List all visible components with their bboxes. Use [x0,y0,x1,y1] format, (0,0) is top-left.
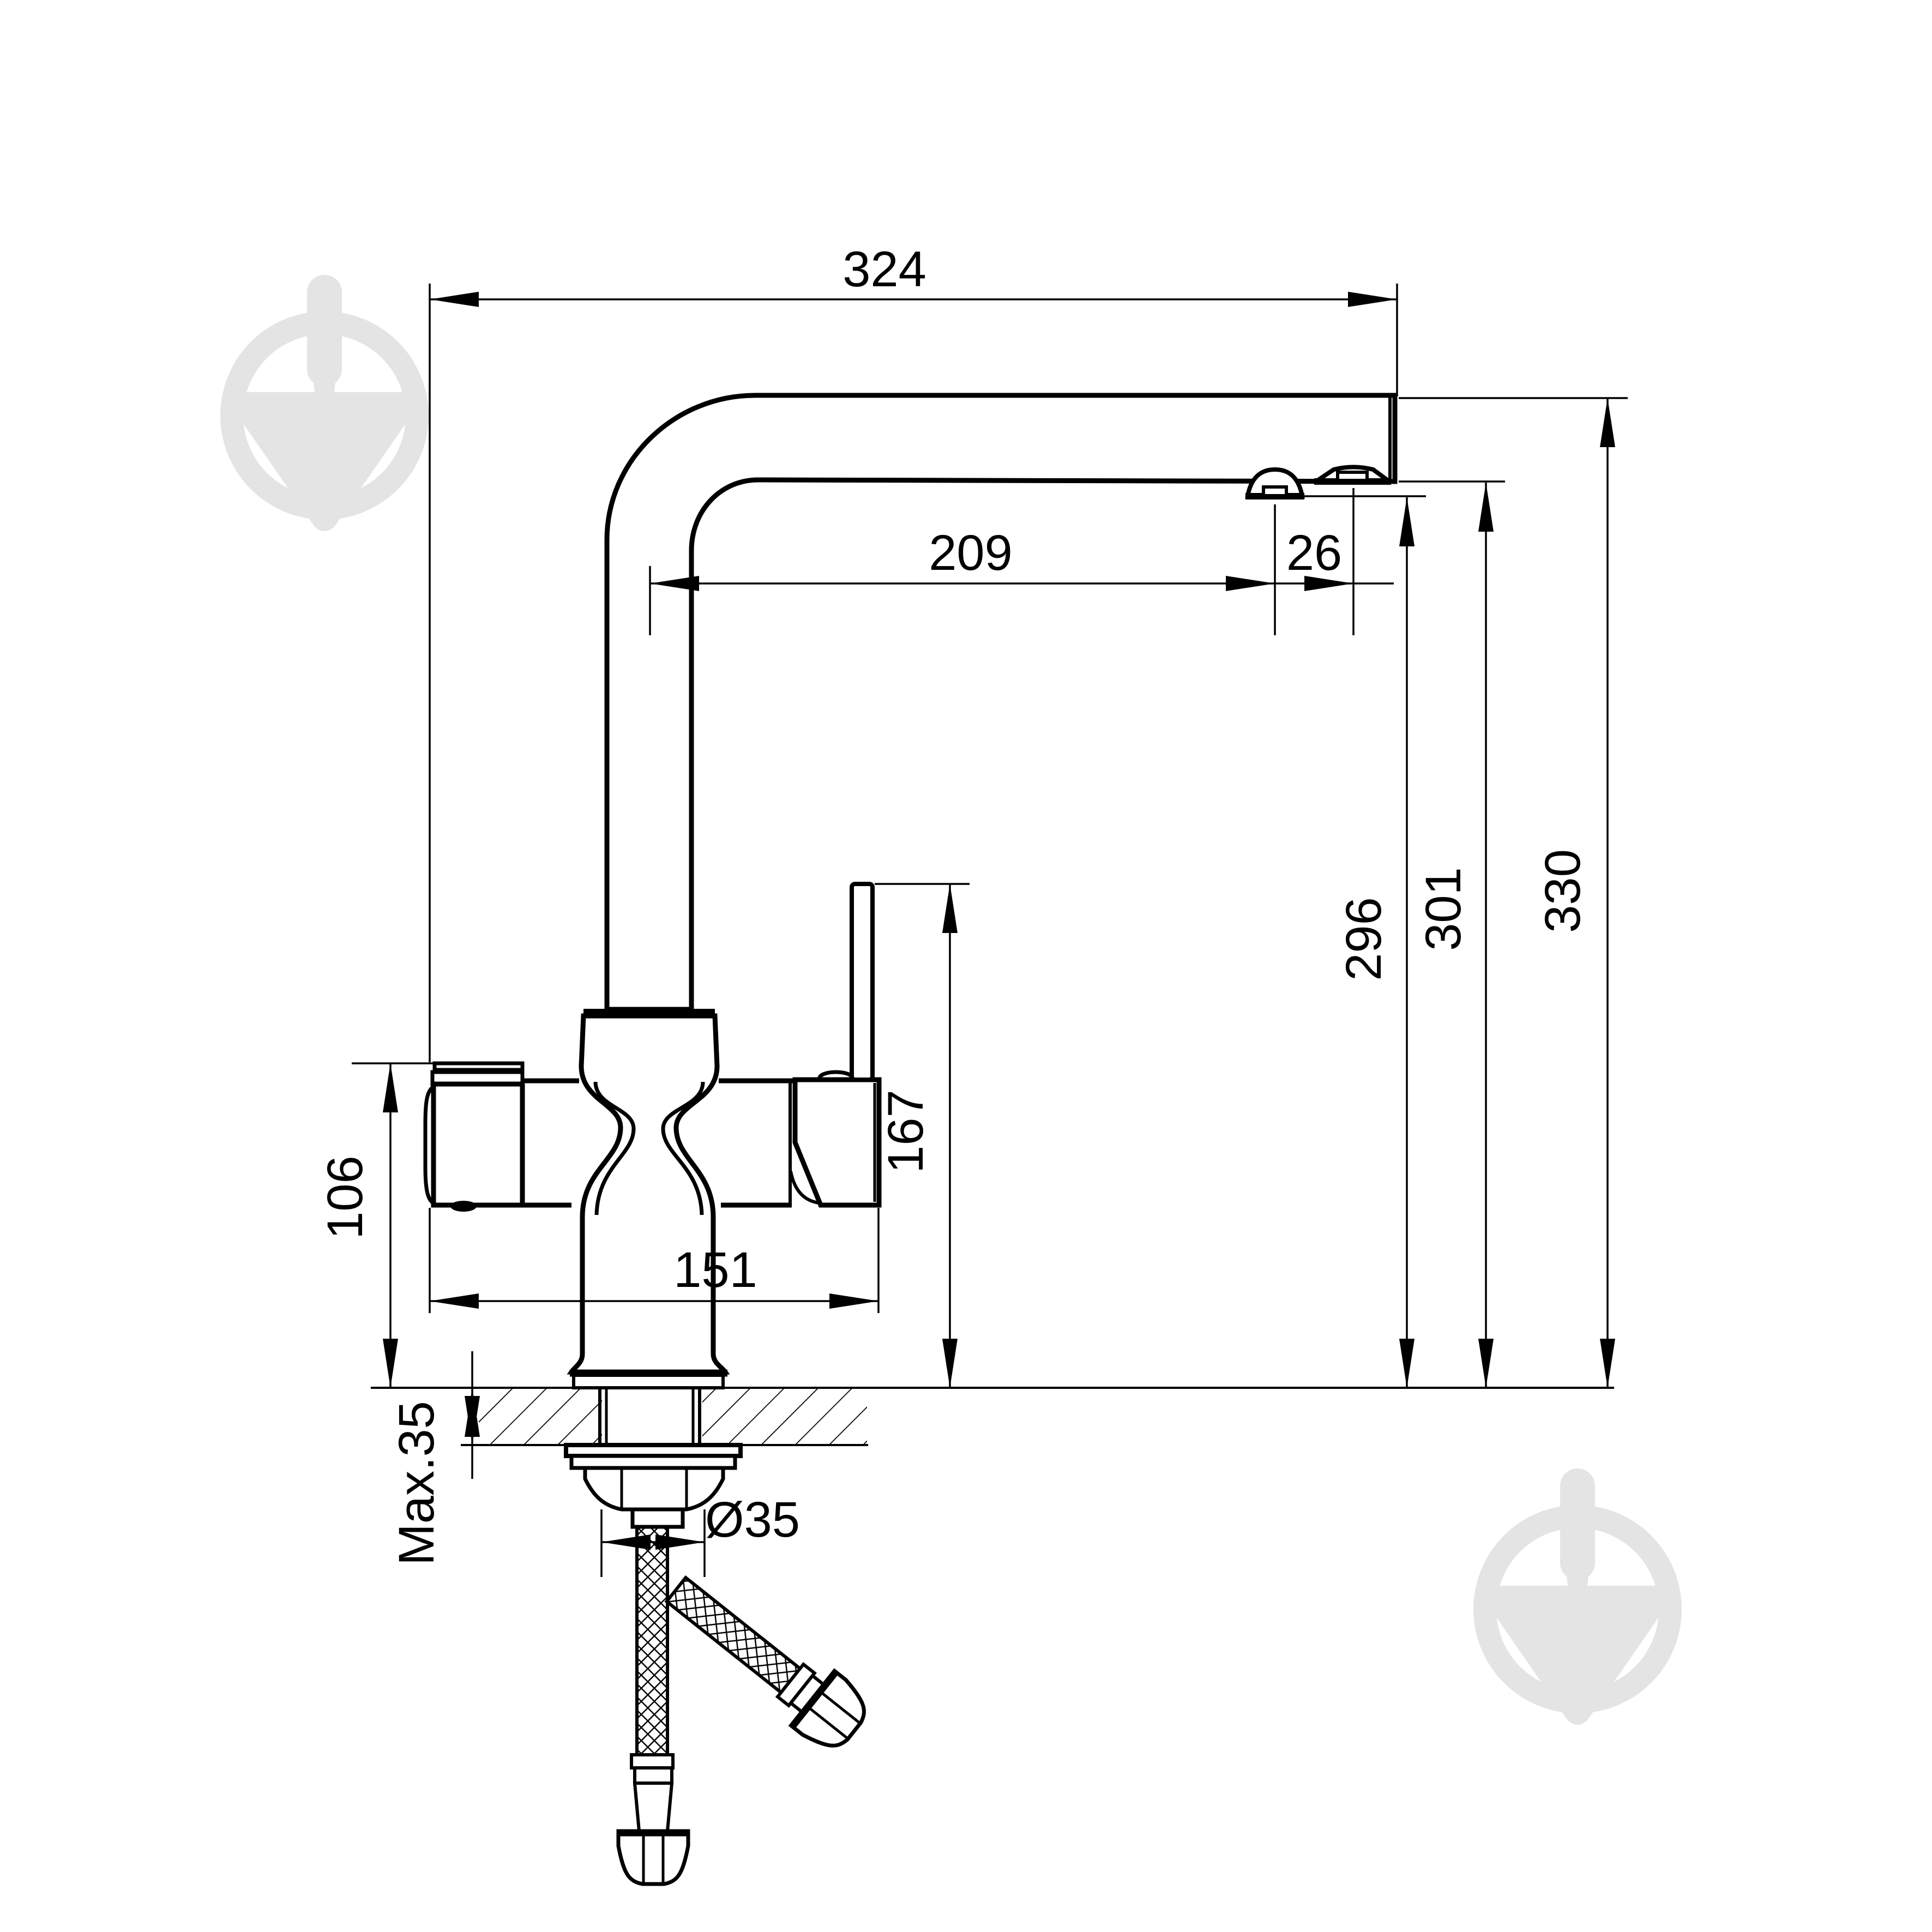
counter-hatch-right [702,1389,867,1444]
counter-hatch-left [479,1389,602,1444]
dim-label-296: 296 [1336,897,1392,981]
dim-label-167: 167 [878,1090,934,1173]
faucet-body [522,1013,795,1372]
dim-label-106: 106 [317,1155,373,1239]
hose-collar [633,1509,683,1527]
dim-spout-projection: 209 26 [650,525,1394,591]
hose-vertical [618,1527,688,1884]
dim-label-330: 330 [1535,849,1591,933]
watermark-bottom-right [1485,1468,1670,1719]
knob-screw-detail [450,1201,477,1212]
lever-rod [852,884,872,1080]
dim-label-209: 209 [929,525,1013,581]
dim-label-max35: Max.35 [389,1401,444,1566]
dim-spout-reach: 324 [430,242,1397,307]
dim-max-deck: Max.35 [389,1351,480,1566]
dim-height-301: 301 [1416,483,1494,1388]
spout [607,395,1395,1009]
dim-label-324: 324 [842,242,926,297]
countertop [371,1388,1614,1445]
hose-angled [654,1562,876,1759]
hose-nut-vertical [618,1831,688,1884]
dim-label-301: 301 [1416,867,1471,951]
dim-label-151: 151 [673,1242,757,1298]
faucet-outline [425,395,1395,1527]
dim-height-330: 330 [1535,398,1615,1388]
dim-body-height: 106 [317,1063,398,1388]
dim-label-hole: Ø35 [705,1492,800,1548]
supply-hoses [618,1527,876,1884]
dim-label-26: 26 [1286,525,1342,581]
dim-height-296: 296 [1336,497,1415,1388]
dim-lever-height: 167 [878,884,958,1388]
technical-drawing: 324 209 26 151 Ø35 106 [0,0,1932,1932]
left-handle-knob [425,1063,522,1212]
right-handle-lever [791,884,879,1205]
watermark-top-left [232,275,417,525]
mounting-nut [585,1468,723,1509]
